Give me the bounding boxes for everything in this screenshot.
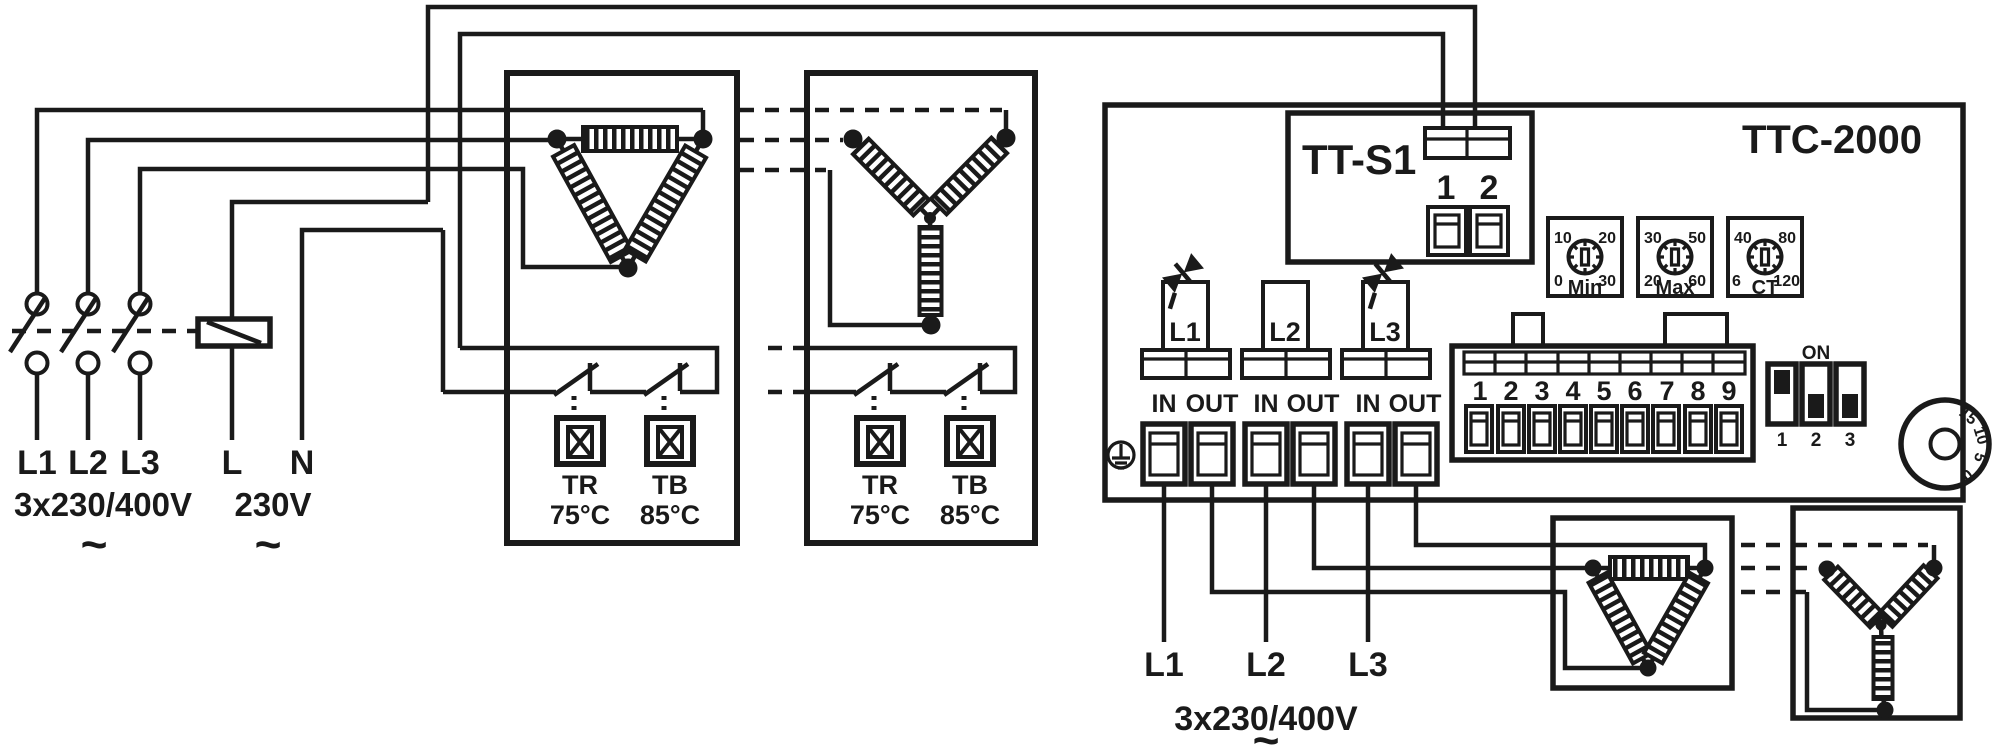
dial-ct-tr: 80 xyxy=(1778,230,1796,247)
strip-terminal-label: 3 xyxy=(1534,376,1549,406)
strip-terminal-label: 8 xyxy=(1690,376,1705,406)
dip-switch-2-lever xyxy=(1808,394,1824,418)
strip-terminal-label: 5 xyxy=(1596,376,1611,406)
in-label: IN xyxy=(1356,390,1381,418)
label-tb: TB xyxy=(652,470,688,500)
label-supply-l3: L3 xyxy=(120,444,160,482)
dial-min-bl: 0 xyxy=(1554,273,1563,290)
dip-on-label: ON xyxy=(1802,343,1831,364)
star-heater-box-small xyxy=(1793,508,1960,719)
strip-terminal-label: 4 xyxy=(1565,376,1580,406)
thermostat-circuit: TR 75°C TB 85°C xyxy=(443,348,717,530)
breaker-switch-3pole xyxy=(10,294,197,374)
heater-element xyxy=(1874,637,1893,699)
ac-symbol: ~ xyxy=(1253,714,1280,756)
dial-knob-icon xyxy=(1658,240,1692,274)
tts1-title: TT-S1 xyxy=(1302,136,1416,183)
label-tb-temp: 85°C xyxy=(640,500,700,530)
thermostat-tb-icon xyxy=(647,418,693,464)
dial-max-name: Max xyxy=(1656,277,1695,299)
heater-element xyxy=(583,127,677,151)
ttc2000-board: TTC-2000 TT-S1 1 2 xyxy=(1105,105,1991,500)
heater-element xyxy=(1644,573,1708,663)
heater-element xyxy=(931,138,1007,215)
tts1-box: TT-S1 1 2 xyxy=(1288,113,1532,262)
heater-element xyxy=(1610,557,1688,579)
label-supply-l2: L2 xyxy=(68,444,108,482)
label-supply-n: N xyxy=(290,444,315,482)
dial-ct-bl: 6 xyxy=(1732,273,1741,290)
phase-output-l2: L2 xyxy=(1242,282,1330,378)
dip-switch-3-lever xyxy=(1842,394,1858,418)
heater-element xyxy=(920,227,942,315)
strip-terminal-label: 6 xyxy=(1627,376,1642,406)
strip-terminal-label: 2 xyxy=(1503,376,1518,406)
label-supply-l: L xyxy=(222,444,243,482)
contactor-coil xyxy=(198,319,270,346)
out-label: OUT xyxy=(1287,390,1340,418)
in-label: IN xyxy=(1254,390,1279,418)
dial-ct-name: CT xyxy=(1752,277,1779,299)
delta-heater-box: TR 75°C TB 85°C xyxy=(443,73,737,543)
dial-knob-icon xyxy=(1748,240,1782,274)
screw-terminal xyxy=(1428,207,1466,255)
label-tb-temp: 85°C xyxy=(940,500,1000,530)
phase-output-l3: L3 xyxy=(1342,252,1430,378)
phase-l1-label: L1 xyxy=(1169,317,1201,347)
heater-element xyxy=(553,145,632,262)
setpoint-knob: 15 10 5 0 xyxy=(1901,400,1991,488)
dial-min-name: Min xyxy=(1568,277,1602,299)
knob-scale-15: 15 xyxy=(1956,404,1981,428)
dial-min-tl: 10 xyxy=(1554,230,1572,247)
tts1-terminal-1-label: 1 xyxy=(1437,169,1456,207)
phase-l3-label: L3 xyxy=(1369,317,1401,347)
out-label: OUT xyxy=(1389,390,1442,418)
dip-switch-1-lever xyxy=(1774,370,1790,394)
label-tr: TR xyxy=(562,470,598,500)
load-l2-label: L2 xyxy=(1246,646,1286,684)
power-screw-terminals xyxy=(1143,424,1437,484)
in-label: IN xyxy=(1152,390,1177,418)
screw-terminal xyxy=(1470,207,1508,255)
label-tr: TR xyxy=(862,470,898,500)
terminal-strip-1-9: 1 2 3 4 5 6 7 8 9 xyxy=(1452,314,1753,460)
tts1-terminal-2-label: 2 xyxy=(1480,169,1499,207)
label-supply-l1: L1 xyxy=(17,444,57,482)
heater-element xyxy=(1589,573,1652,664)
ttc2000-title: TTC-2000 xyxy=(1742,118,1922,162)
wiring-diagram: L1 L2 L3 L N 3x230/400V ~ 230V ~ xyxy=(0,0,1993,756)
out-label: OUT xyxy=(1186,390,1239,418)
label-tb: TB xyxy=(952,470,988,500)
dip-switch-1-label: 1 xyxy=(1777,430,1788,451)
label-tr-temp: 75°C xyxy=(850,500,910,530)
dial-ct-tl: 40 xyxy=(1734,230,1752,247)
thermostat-tr-icon xyxy=(557,418,603,464)
heater-element xyxy=(853,139,929,216)
phase-l2-label: L2 xyxy=(1269,317,1301,347)
strip-screw-terminals xyxy=(1466,406,1742,452)
earth-icon xyxy=(1108,442,1134,468)
phase-output-l1: L1 xyxy=(1142,252,1230,378)
load-l1-label: L1 xyxy=(1144,646,1184,684)
dip-switches: ON 1 2 3 xyxy=(1768,343,1864,451)
dial-min-tr: 20 xyxy=(1598,230,1616,247)
strip-terminal-label: 7 xyxy=(1659,376,1674,406)
strip-terminal-label: 1 xyxy=(1472,376,1487,406)
dial-ct: 40 80 6 120 CT xyxy=(1728,218,1802,299)
thermostat-tb-icon xyxy=(947,418,993,464)
heater-element xyxy=(1824,567,1884,628)
label-tr-temp: 75°C xyxy=(550,500,610,530)
thermostat-tr-icon xyxy=(857,418,903,464)
tts1-connector xyxy=(1425,128,1510,158)
ac-symbol: ~ xyxy=(255,518,282,570)
heater-element xyxy=(625,146,706,262)
dial-max-tl: 30 xyxy=(1644,230,1662,247)
dial-knob-icon xyxy=(1568,240,1602,274)
dip-switch-3-label: 3 xyxy=(1845,430,1856,451)
dial-max-tr: 50 xyxy=(1688,230,1706,247)
star-heater-box: TR 75°C TB 85°C xyxy=(740,73,1035,543)
dip-switch-2-label: 2 xyxy=(1811,430,1822,451)
load-l3-label: L3 xyxy=(1348,646,1388,684)
dial-max: 30 50 20 60 Max xyxy=(1638,218,1712,299)
strip-terminal-label: 9 xyxy=(1721,376,1736,406)
ac-symbol: ~ xyxy=(81,518,108,570)
dial-min: 10 20 0 30 Min xyxy=(1548,218,1622,299)
